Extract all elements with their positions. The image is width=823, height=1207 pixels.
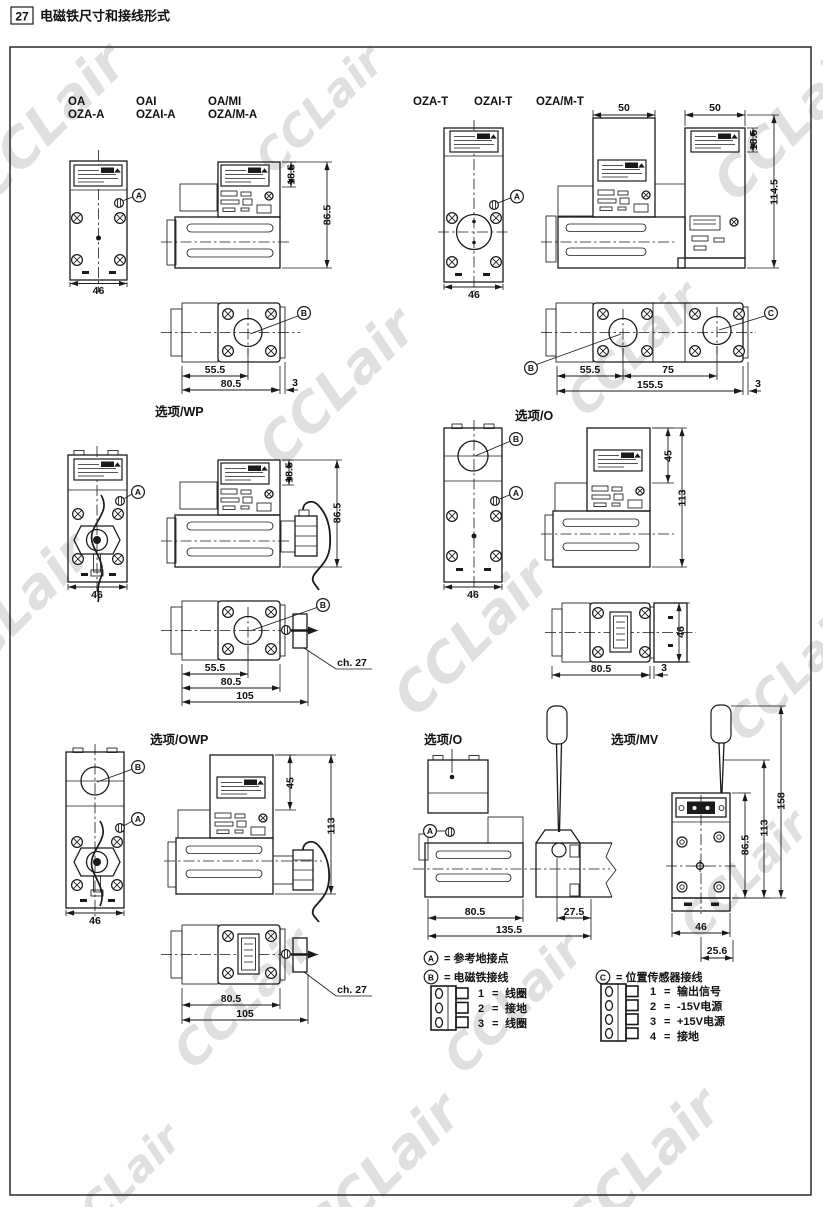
watermark: CCLair [551,1073,736,1207]
legend-c: C = 位置传感器接线 [596,970,702,984]
dim-50-right: 50 [685,102,745,126]
dim-width-46: 46 [70,282,127,297]
svg-text:18.5: 18.5 [286,164,298,185]
svg-text:158: 158 [776,792,788,810]
svg-text:155.5: 155.5 [637,379,663,391]
legend-c-terminal [601,984,638,1041]
page-header: 27 电磁铁尺寸和接线形式 [11,7,170,24]
watermark: CCLair [49,1112,193,1207]
svg-text:接地: 接地 [505,1001,527,1015]
model-label: OZA/M-A [208,109,257,121]
watermark: CCLair [670,799,820,949]
dim-45: 45 [275,755,297,810]
svg-text:55.5: 55.5 [205,364,226,376]
svg-text:A: A [428,953,434,963]
svg-text:A: A [427,826,433,836]
legend-c-items: 1 = 输出信号 2 = -15V电源 3 = +15V电源 4 = 接地 [650,984,725,1043]
svg-text:线圈: 线圈 [505,986,527,1000]
svg-text:=: = [664,1001,670,1013]
svg-text:45: 45 [663,450,675,462]
dim-80-5: 80.5 [552,663,650,679]
svg-text:=: = [492,1003,498,1015]
svg-text:46: 46 [468,289,480,301]
caption-wp: 选项/WP [155,404,204,419]
svg-text:B: B [528,363,534,373]
svg-text:45: 45 [285,777,297,789]
svg-text:= 电磁铁接线: = 电磁铁接线 [444,970,508,984]
dim-width-46: 46 [68,584,127,601]
lever-knob [711,705,731,743]
svg-text:3: 3 [478,1018,484,1030]
dim-18-5: 18.5 [282,460,296,485]
svg-text:3: 3 [661,662,667,674]
svg-text:55.5: 55.5 [580,364,601,376]
model-label: OZA-T [413,96,448,108]
svg-text:ch. 27: ch. 27 [337,984,367,996]
dim-width-46: 46 [66,910,124,927]
svg-text:B: B [428,972,434,982]
caption-owp: 选项/OWP [150,732,208,747]
svg-text:3: 3 [292,377,298,389]
svg-text:113: 113 [677,489,689,506]
svg-text:ch. 27: ch. 27 [337,657,367,669]
dim-113: 113 [275,755,338,894]
svg-text:86.5: 86.5 [740,835,752,856]
oa-bottom-view: B 55.5 80.5 3 [161,303,310,394]
watermark: CCLair [701,28,823,213]
dim-27-5: 27.5 [557,858,591,922]
o-side-view: 45 113 [541,428,689,567]
watermark: CCLair [0,518,106,703]
dim-18-5: 18.5 [747,128,760,152]
wp-bottom-view: B ch. 27 55.5 80.5 105 [161,599,372,706]
svg-text:1: 1 [478,988,484,1000]
svg-text:86.5: 86.5 [322,205,334,226]
dim-45: 45 [652,428,675,483]
model-label: OZAI-A [136,109,176,121]
svg-text:A: A [514,192,520,202]
watermark: CCLair [291,1078,476,1207]
svg-text:80.5: 80.5 [221,378,242,390]
oa-side-view: 18.5 86.5 [161,162,334,268]
svg-text:=: = [492,1018,498,1030]
label-ch27: ch. 27 [304,972,372,996]
model-label: OA/MI [208,96,241,108]
svg-text:C: C [600,972,606,982]
svg-text:=: = [664,1031,670,1043]
legend-b: B = 电磁铁接线 [424,970,508,984]
oa-front-view: A 46 [70,150,145,297]
svg-text:B: B [135,762,141,772]
svg-text:135.5: 135.5 [496,924,522,936]
svg-text:=: = [664,986,670,998]
svg-text:105: 105 [236,1008,254,1020]
svg-text:=: = [492,988,498,1000]
dim-55-5: 55.5 [182,646,248,678]
svg-text:46: 46 [89,915,101,927]
model-label: OA [68,96,85,108]
dim-3: 3 [640,662,668,679]
owp-side-view: 45 113 [164,755,338,922]
label-ch27: ch. 27 [304,648,372,669]
svg-text:2: 2 [478,1003,484,1015]
svg-text:114.5: 114.5 [769,179,781,205]
svg-text:线圈: 线圈 [505,1016,527,1030]
svg-text:B: B [320,600,326,610]
svg-text:B: B [513,434,519,444]
svg-text:C: C [768,308,774,318]
dim-105: 105 [182,650,308,706]
svg-text:27.5: 27.5 [564,906,585,918]
svg-text:4: 4 [650,1031,657,1043]
callout-a: A [500,487,523,500]
svg-text:80.5: 80.5 [591,663,612,675]
svg-text:= 位置传感器接线: = 位置传感器接线 [616,970,702,984]
svg-text:86.5: 86.5 [332,503,344,524]
dim-80-5: 80.5 [182,366,280,394]
svg-text:A: A [135,814,141,824]
svg-text:75: 75 [662,364,674,376]
callout-b: B [97,761,144,782]
svg-text:46: 46 [675,626,687,638]
page-number: 27 [15,10,29,24]
dim-80-5: 80.5 [182,664,280,692]
svg-text:输出信号: 输出信号 [677,984,721,998]
svg-text:= 参考地接点: = 参考地接点 [444,951,508,965]
model-label: OZA/M-T [536,96,584,108]
svg-text:46: 46 [91,589,103,601]
dim-3: 3 [733,362,761,395]
caption-o-top: 选项/O [515,408,553,423]
svg-text:A: A [513,488,519,498]
legend-a: A = 参考地接点 [424,951,508,965]
watermark: CCLair [246,293,431,478]
callout-a: A [424,825,445,838]
svg-text:A: A [135,487,141,497]
svg-text:=: = [664,1016,670,1028]
svg-text:-15V电源: -15V电源 [677,999,722,1013]
dim-113: 113 [652,428,689,567]
model-label: OZA-A [68,109,104,121]
svg-text:50: 50 [709,102,721,114]
callout-a: A [125,813,145,826]
svg-text:接地: 接地 [677,1029,699,1043]
model-label: OZAI-T [474,96,512,108]
lever-knob [547,706,567,744]
watermark: CCLair [716,593,823,751]
svg-text:80.5: 80.5 [221,676,242,688]
svg-text:113: 113 [326,817,338,834]
owp-front-view: B A 46 [66,744,144,927]
svg-text:18.5: 18.5 [284,462,296,483]
callout-a: A [499,190,524,203]
svg-text:3: 3 [650,1016,656,1028]
caption-mv: 选项/MV [611,732,659,747]
oza-t-front-view: A 46 [438,120,523,301]
model-labels-right: OZA-T OZAI-T OZA/M-T [413,96,584,108]
svg-text:B: B [301,308,307,318]
o-bottom-view: 80.5 3 46 [545,603,696,679]
catalog-page: CCLair CCLair CCLair CCLair CCLair CCLai… [0,0,823,1207]
svg-text:105: 105 [236,690,254,702]
svg-text:18.5: 18.5 [748,130,760,151]
page-title: 电磁铁尺寸和接线形式 [40,9,170,24]
dim-55-5: 55.5 [182,348,248,380]
dim-80-5: 80.5 [428,899,523,922]
svg-text:3: 3 [755,378,761,390]
dim-width-46: 46 [444,284,503,301]
svg-text:46: 46 [93,285,105,297]
svg-text:A: A [136,191,142,201]
svg-text:25.6: 25.6 [707,945,728,957]
svg-text:55.5: 55.5 [205,662,226,674]
watermark: CCLair [381,543,566,728]
wp-side-view: 18.5 86.5 [161,460,344,590]
svg-text:50: 50 [618,102,630,114]
caption-o-bottom: 选项/O [424,732,462,747]
svg-text:80.5: 80.5 [221,993,242,1005]
dim-50-left: 50 [593,102,655,118]
model-label: OAI [136,96,156,108]
svg-text:113: 113 [759,819,771,836]
svg-text:2: 2 [650,1001,656,1013]
svg-text:+15V电源: +15V电源 [677,1014,725,1028]
svg-text:46: 46 [695,921,707,933]
svg-text:46: 46 [467,589,479,601]
svg-text:1: 1 [650,986,656,998]
svg-text:80.5: 80.5 [465,906,486,918]
